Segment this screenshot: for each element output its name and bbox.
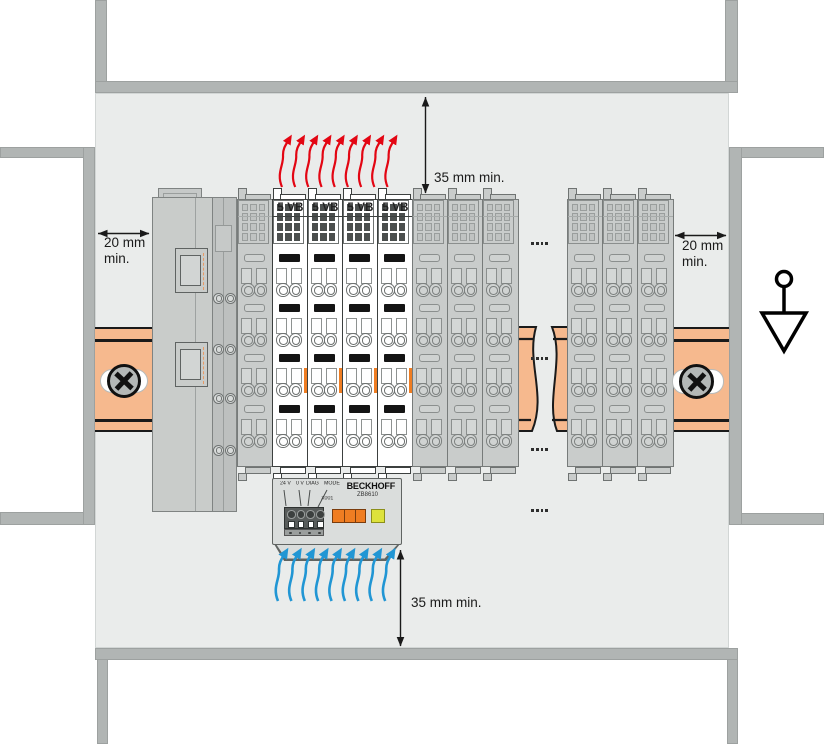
heat-arrow (293, 141, 301, 187)
cool-air-arrow (316, 555, 324, 601)
continuation-dot (541, 509, 544, 512)
continuation-dot (531, 448, 534, 451)
continuation-dot (545, 448, 548, 451)
continuation-dot (536, 448, 539, 451)
continuation-dot (541, 357, 544, 360)
continuation-dot (531, 242, 534, 245)
bottom-clearance-label: 35 mm min. (411, 595, 482, 611)
cool-air-arrow (370, 555, 378, 601)
continuation-dot (531, 357, 534, 360)
cool-air-arrow (356, 555, 364, 601)
heat-arrow (333, 141, 341, 187)
cool-air-arrow (276, 555, 284, 601)
cool-air-arrows (276, 555, 391, 601)
heat-arrow (385, 141, 393, 187)
continuation-dot (541, 242, 544, 245)
cool-air-arrow (289, 555, 297, 601)
continuation-dot (545, 357, 548, 360)
right-clearance-label: 20 mm min. (682, 238, 730, 270)
heat-arrow (346, 141, 354, 187)
heat-arrow (319, 141, 327, 187)
continuation-dot (541, 448, 544, 451)
heat-arrow (372, 141, 380, 187)
ground-symbol (762, 272, 806, 352)
annotation-layer (0, 0, 824, 744)
cool-air-arrow (329, 555, 337, 601)
heat-arrows (280, 141, 394, 187)
cool-air-arrow (303, 555, 311, 601)
continuation-dot (545, 509, 548, 512)
heat-arrow (280, 141, 288, 187)
heat-arrow (359, 141, 367, 187)
dimension-arrows2 (98, 97, 726, 646)
continuation-dot (536, 242, 539, 245)
cool-air-arrow (383, 555, 391, 601)
dimension-arrowhead (422, 97, 430, 107)
left-clearance-label: 20 mm min. (104, 235, 152, 267)
continuation-dot (545, 242, 548, 245)
dimension-arrowhead (397, 550, 405, 560)
top-clearance-label: 35 mm min. (434, 170, 505, 186)
continuation-dot (536, 509, 539, 512)
cool-air-arrow (343, 555, 351, 601)
installation-diagram: 5 VB5 VB5 VB5 VB 24 V 0 V DIAG MODE X001… (0, 0, 824, 744)
continuation-dot (536, 357, 539, 360)
continuation-dot (531, 509, 534, 512)
heat-arrow (306, 141, 314, 187)
